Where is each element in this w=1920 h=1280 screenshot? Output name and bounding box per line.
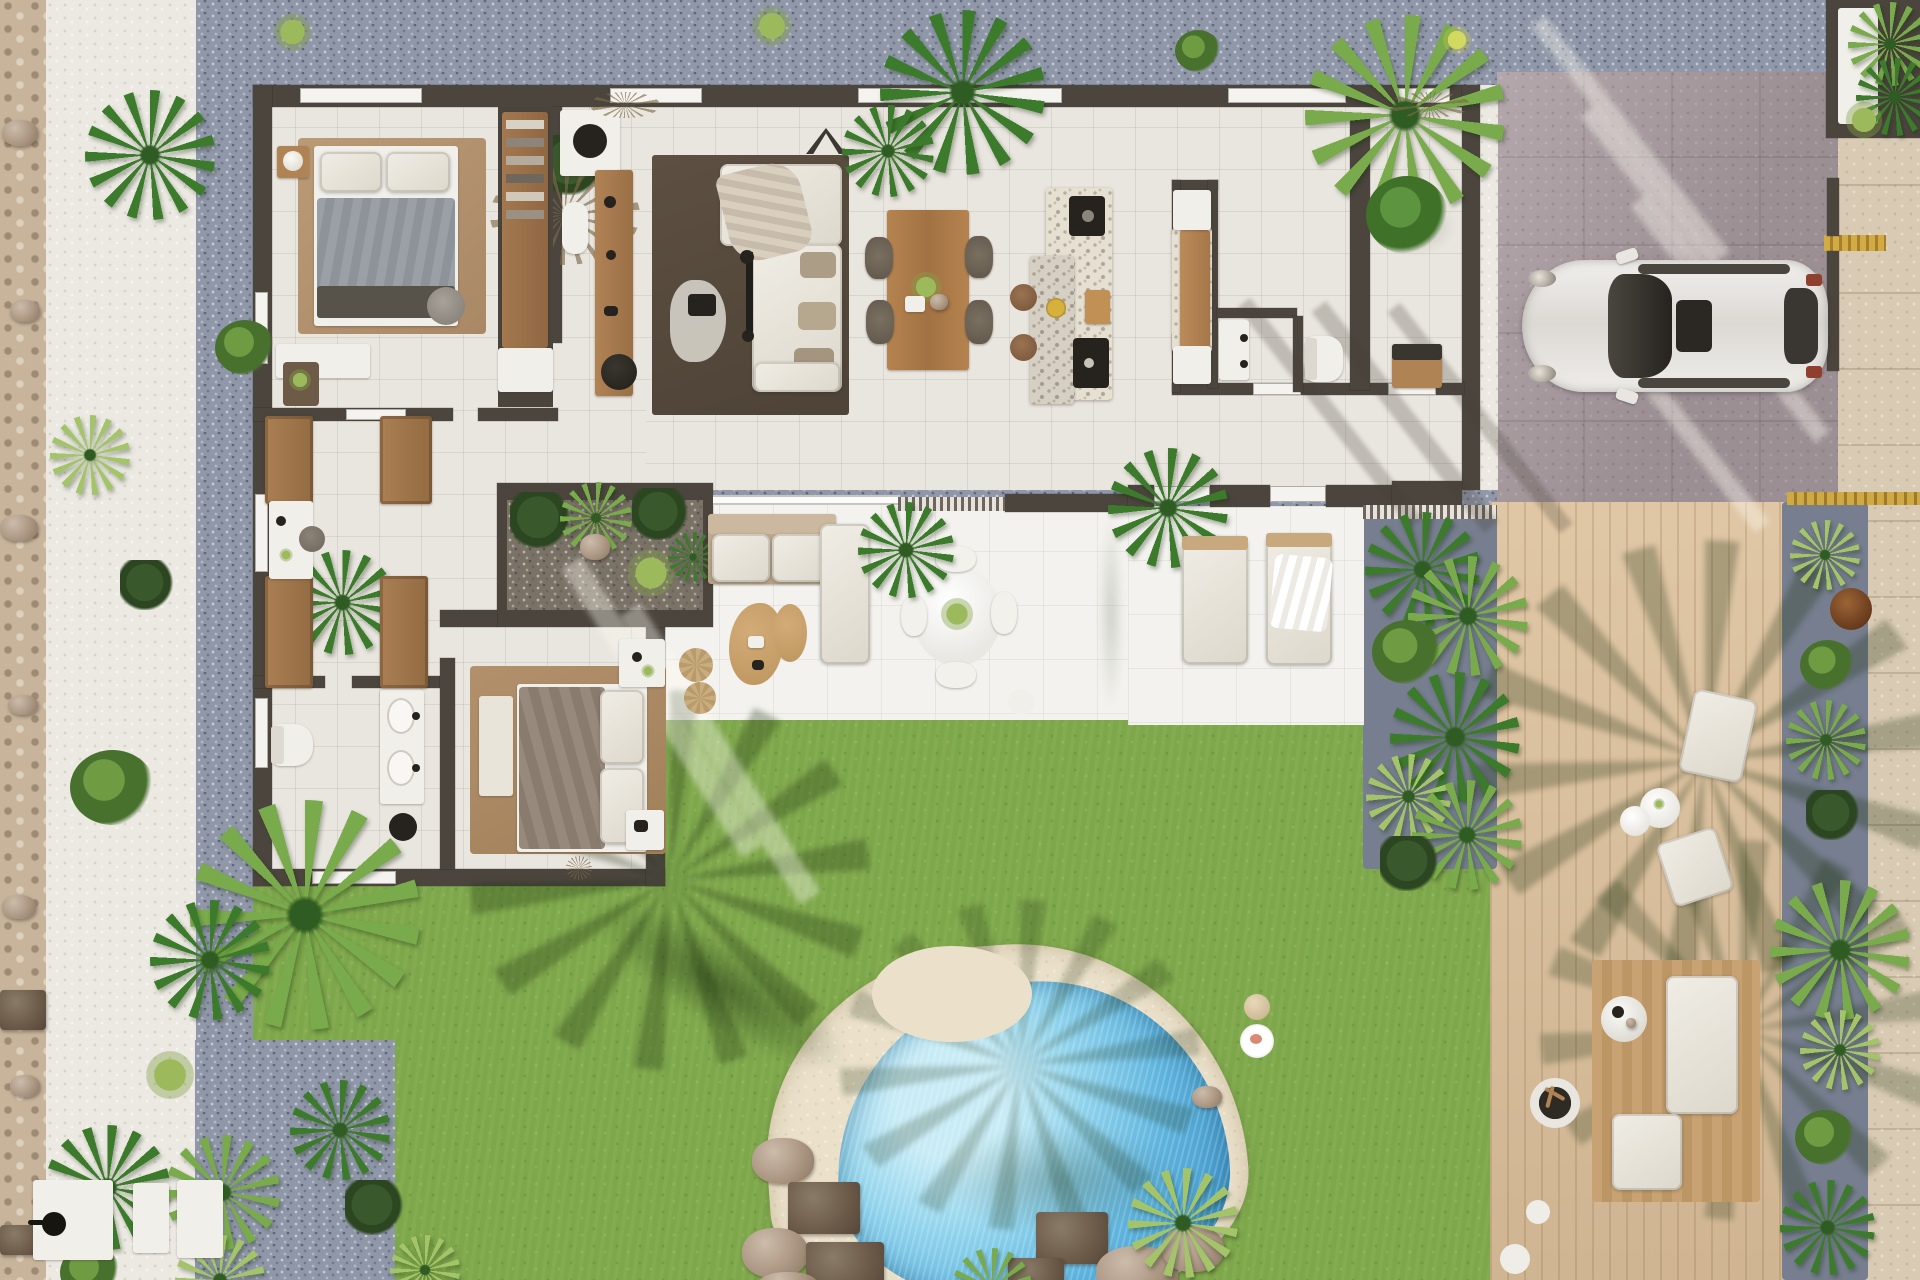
bar-stool [1010, 284, 1037, 311]
grass-tuft [748, 5, 796, 47]
indoor-palm [842, 105, 934, 197]
console-decor [604, 196, 616, 208]
grass-tuft [270, 12, 315, 52]
pillow [386, 152, 450, 192]
beach-ball [1244, 994, 1270, 1020]
shrub [1175, 30, 1221, 72]
ironing-board [562, 202, 588, 254]
pantry-cabinet [1173, 190, 1211, 230]
patio-sofa-back [708, 514, 836, 534]
drive-wall [1827, 178, 1839, 236]
wall-bed2-top [440, 610, 497, 627]
patio-cushion [712, 534, 770, 582]
wall-bed2-left [440, 658, 455, 869]
table-lamp [283, 151, 303, 171]
decor-bowl [1830, 588, 1872, 630]
clothes [506, 120, 544, 129]
pillow [600, 690, 644, 764]
island-tier [1030, 256, 1074, 404]
nightstand-decor [634, 820, 648, 832]
dining-chair [865, 237, 893, 279]
strip-plant [1800, 1010, 1880, 1090]
strip-plant [1790, 520, 1860, 590]
shrub [120, 560, 175, 610]
clothes [506, 174, 544, 183]
outdoor-sofa [1666, 976, 1738, 1114]
bath-faucet [1240, 360, 1248, 368]
bed-bench [479, 696, 513, 796]
gold-gate [1824, 235, 1886, 251]
outdoor-chair [991, 592, 1017, 634]
sill-left-2 [255, 494, 268, 572]
parked-car [1512, 250, 1842, 400]
stone [2, 895, 36, 919]
fire-bowl [1530, 1078, 1580, 1128]
wardrobe [265, 576, 313, 688]
courtyard-shrub [632, 488, 690, 540]
pantry-shelf [1180, 230, 1210, 350]
pool-curve-sand [872, 946, 1032, 1042]
agave [50, 415, 130, 495]
table-bowl [930, 294, 948, 310]
side-stool [1008, 689, 1034, 715]
vanity-sink [387, 698, 415, 734]
sill-top-1 [300, 88, 422, 103]
fruit-bowl [1046, 298, 1066, 318]
bath-faucet [1240, 334, 1248, 342]
lounger-headrest [1266, 533, 1332, 547]
strip-plant [1795, 1110, 1855, 1165]
car-windshield [1608, 274, 1672, 378]
starfish-decor [566, 856, 592, 880]
patio-table-decor [748, 636, 764, 648]
grass-tuft [140, 1050, 200, 1100]
vanity-sink [387, 750, 415, 786]
glass-terrace [713, 495, 898, 505]
pantry-cabinet [1173, 346, 1211, 384]
dining-chair [965, 236, 993, 278]
car-headlight [1528, 365, 1556, 382]
lounger-headrest [1182, 536, 1248, 550]
stone [10, 1075, 40, 1097]
car-rear-window [1784, 288, 1818, 364]
pool-stone [1192, 1086, 1222, 1108]
outdoor-chair [936, 662, 976, 688]
desk-plant [278, 548, 294, 562]
potted-plant [287, 368, 313, 392]
decor-stand [746, 252, 753, 338]
driftwood-decor [590, 92, 660, 118]
table-decor [905, 296, 925, 312]
courtyard-pot [580, 534, 610, 560]
clothes [506, 210, 544, 219]
shrub [215, 320, 275, 375]
wardrobe-shelves [502, 112, 548, 348]
deck-disc [1500, 1244, 1530, 1274]
car-taillight [1806, 366, 1822, 378]
bath-stool [389, 813, 417, 841]
patio-table-decor [752, 660, 764, 670]
aerial-villa-scene [0, 0, 1920, 1280]
cooktop-knob [1082, 210, 1094, 222]
toilet-tank [271, 726, 284, 764]
vanity-faucet [412, 712, 420, 720]
car-side-glass [1638, 378, 1790, 388]
floor-pouf [601, 354, 637, 390]
vanity-faucet [412, 764, 420, 772]
pool-rock [806, 1242, 884, 1280]
planter-tuft [1842, 100, 1886, 140]
table-centerpiece [938, 596, 976, 632]
ottoman [427, 287, 465, 325]
entry-tree [1366, 176, 1448, 254]
palm-tree [150, 900, 270, 1020]
bar-stool [1010, 334, 1037, 361]
entry-bench-cushion [1392, 344, 1442, 360]
stepping-paver [177, 1180, 223, 1258]
clothes [506, 192, 544, 201]
console-decor [604, 306, 618, 316]
sofa-pillow [798, 302, 836, 330]
dresser-plant [640, 664, 656, 678]
strip-plant [1786, 700, 1866, 780]
dining-chair [965, 300, 993, 344]
strip-plant [1780, 1180, 1875, 1275]
wardrobe [380, 416, 432, 504]
tray-cup [1612, 1006, 1624, 1018]
bed-shrub [1372, 620, 1442, 684]
pool-rock [742, 1228, 808, 1278]
towel [1269, 554, 1333, 633]
stone [2, 120, 38, 146]
strip-plant [1800, 640, 1855, 690]
pool-rock [752, 1138, 814, 1184]
cutting-board [1085, 290, 1110, 324]
coffee-tray [688, 294, 716, 316]
desk-chair [299, 526, 325, 552]
pool-rock [788, 1182, 860, 1234]
sun-lounger [1182, 536, 1248, 664]
dining-chair [866, 300, 894, 344]
shrub [345, 1180, 405, 1235]
gold-threshold [1787, 492, 1920, 505]
sill-left-3 [255, 698, 268, 768]
dresser-decor [632, 652, 642, 662]
stone [0, 990, 46, 1030]
wardrobe [380, 576, 428, 688]
car-body [1522, 260, 1828, 392]
stone [0, 515, 38, 541]
car-side-glass [1638, 264, 1790, 274]
driftwood-decor [1390, 92, 1470, 118]
sill-patio-b [1270, 486, 1326, 502]
outdoor-chair [901, 596, 927, 636]
pool-snack [1250, 1034, 1262, 1044]
strip-yucca [1770, 880, 1910, 1020]
desk-decor [276, 516, 286, 526]
console-decor [606, 250, 616, 260]
kitchen-faucet [1084, 358, 1094, 368]
decor-stand-top [740, 250, 754, 264]
sofa-armrest [754, 362, 840, 392]
bed-duvet [519, 687, 605, 849]
strip-plant [1806, 790, 1861, 840]
clothes [506, 138, 544, 147]
wicker-pouf [679, 648, 713, 682]
dresser [619, 639, 665, 687]
stone [8, 695, 38, 715]
patio-table [773, 604, 807, 662]
terrace-palm [858, 502, 954, 598]
wall-bed1-b [478, 408, 558, 421]
tray-cup [1626, 1018, 1636, 1028]
clothes [506, 156, 544, 165]
toilet-tank [1305, 338, 1317, 380]
pillow [320, 152, 382, 192]
utility-basin [573, 124, 607, 158]
bed-shrub [1380, 836, 1440, 891]
palm-tree [85, 90, 215, 220]
deck-table-plant [1652, 798, 1666, 810]
pool-rock [1036, 1212, 1108, 1264]
tray-table [1601, 996, 1647, 1042]
decor-stand-top [742, 330, 754, 342]
wardrobe [265, 416, 313, 504]
closet-dresser [498, 348, 553, 392]
outdoor-lamp [42, 1212, 66, 1236]
deck-pouf [1526, 1200, 1550, 1224]
pool-agave [1128, 1168, 1238, 1278]
stepping-paver [133, 1183, 169, 1253]
bath-vanity [1219, 320, 1249, 380]
yellow-tuft [1440, 25, 1474, 55]
stone [10, 300, 40, 322]
car-taillight [1806, 274, 1822, 286]
outdoor-sofa [1612, 1114, 1682, 1190]
palm-tree [290, 1080, 390, 1180]
sofa-pillow [800, 252, 836, 278]
lamp-arm [28, 1220, 44, 1225]
wicker-pouf [684, 682, 716, 714]
shrub [70, 750, 155, 825]
car-sunroof [1676, 300, 1712, 352]
car-headlight [1528, 270, 1556, 287]
deck-side-table [1620, 806, 1650, 836]
